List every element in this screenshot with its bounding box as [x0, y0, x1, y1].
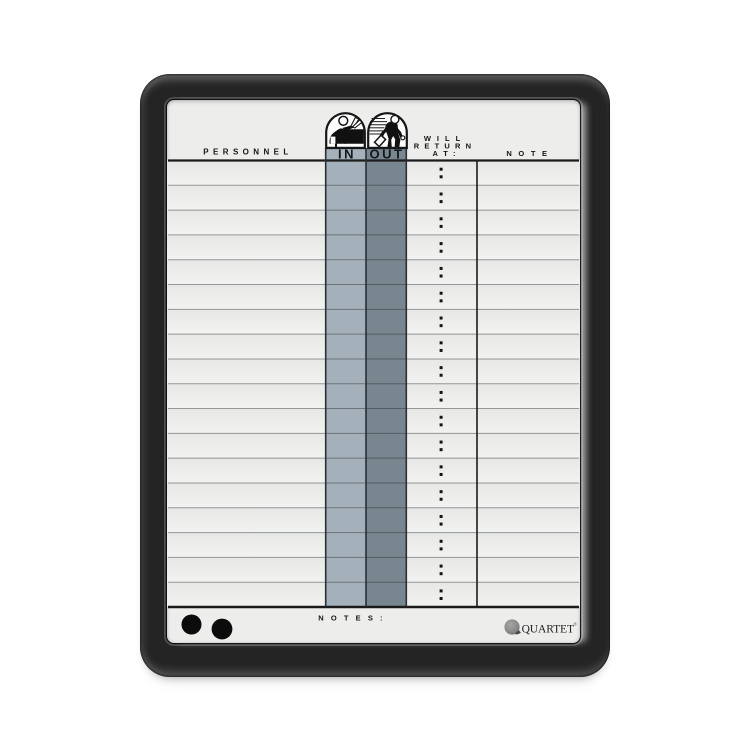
svg-text:OUT: OUT [370, 147, 405, 162]
svg-text:NOTES:: NOTES: [318, 614, 390, 623]
svg-text:®: ® [574, 622, 578, 627]
svg-text:QUARTET: QUARTET [522, 623, 574, 635]
svg-text:PERSONNEL: PERSONNEL [203, 148, 292, 157]
svg-text:NOTE: NOTE [506, 149, 553, 158]
svg-text:AT:: AT: [432, 149, 461, 158]
svg-text:IN: IN [338, 147, 356, 162]
